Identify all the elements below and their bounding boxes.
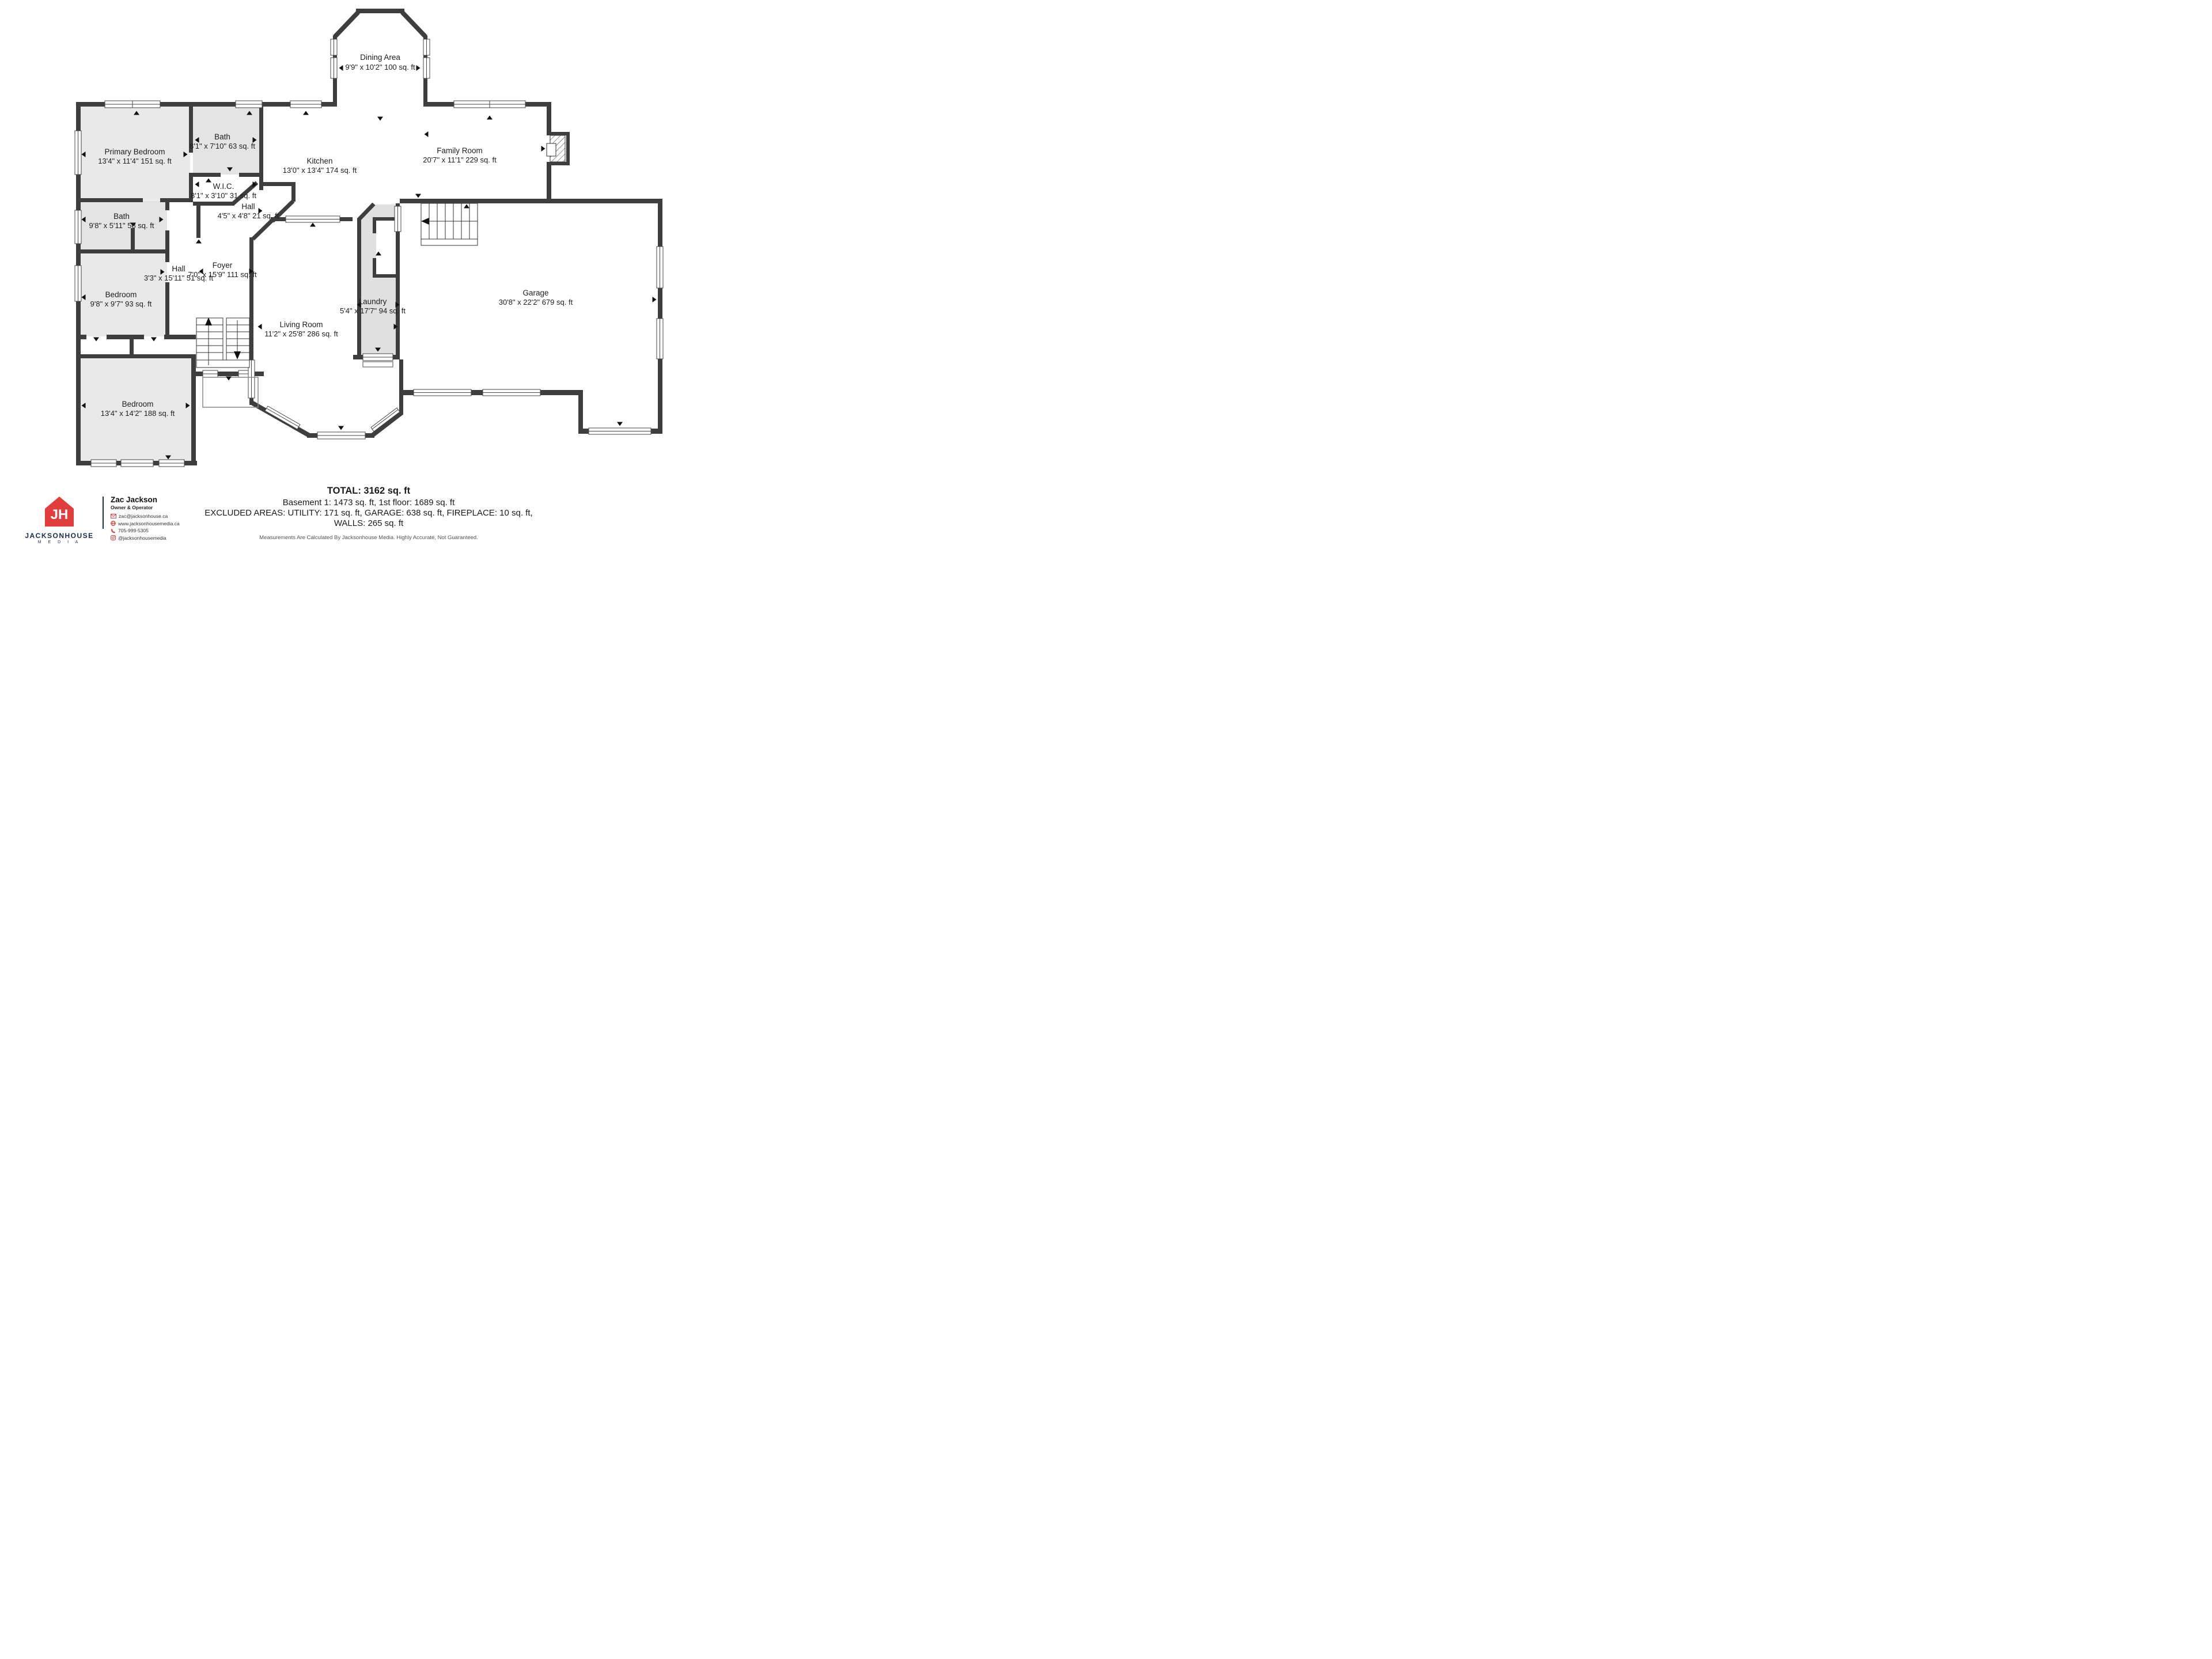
- contact-instagram: @jacksonhousemedia: [118, 535, 166, 541]
- room-label-garage: Garage: [522, 289, 548, 297]
- room-dims-hall-small: 4'5" x 4'8" 21 sq. ft: [218, 211, 279, 220]
- room-dims-bedroom-left: 9'8" x 9'7" 93 sq. ft: [90, 300, 152, 308]
- room-label-wic: W.I.C.: [213, 182, 234, 191]
- room-dims-dining: 9'9" x 10'2" 100 sq. ft: [345, 63, 415, 71]
- room-label-bath-left: Bath: [113, 212, 130, 221]
- branding-block: JH JACKSONHOUSE M E D I A Zac Jackson Ow…: [22, 494, 180, 544]
- house-logo-icon: JH: [41, 494, 77, 528]
- contact-website: www.jacksonhousemedia.ca: [118, 521, 180, 527]
- floor-plan-page: Dining Area 9'9" x 10'2" 100 sq. ft Prim…: [0, 0, 737, 553]
- garage-doors: [414, 389, 651, 434]
- room-label-bedroom-bottom: Bedroom: [122, 400, 154, 408]
- company-name: JACKSONHOUSE: [22, 532, 97, 540]
- garage-stairs: [421, 203, 478, 245]
- logo-monogram: JH: [51, 507, 69, 522]
- room-label-laundry: Laundry: [359, 297, 387, 306]
- room-label-living: Living Room: [279, 320, 323, 329]
- room-dims-bedroom-bottom: 13'4" x 14'2" 188 sq. ft: [101, 409, 175, 418]
- room-label-bedroom-left: Bedroom: [105, 290, 137, 299]
- agent-title: Owner & Operator: [111, 505, 180, 510]
- room-label-family: Family Room: [437, 146, 483, 155]
- website-icon: [111, 521, 116, 526]
- room-dims-wic: 8'1" x 3'10" 31 sq. ft: [191, 191, 256, 200]
- agent-name: Zac Jackson: [111, 495, 180, 504]
- room-label-hall: Hall: [172, 264, 185, 273]
- room-dims-garage: 30'8" x 22'2" 679 sq. ft: [499, 298, 573, 306]
- company-subtitle: M E D I A: [22, 540, 97, 544]
- room-dims-foyer: 7'0" x 15'9" 111 sq. ft: [188, 270, 257, 279]
- room-label-hall-small: Hall: [241, 202, 255, 211]
- room-dims-bath-left: 9'8" x 5'11" 58 sq. ft: [89, 221, 154, 230]
- fireplace: [547, 135, 565, 162]
- room-label-foyer: Foyer: [213, 261, 233, 270]
- room-label-bath-top: Bath: [214, 132, 230, 141]
- room-label-primary: Primary Bedroom: [104, 147, 165, 156]
- contact-phone: 705-999-5305: [118, 528, 149, 533]
- brand-divider: [103, 497, 104, 529]
- foyer-stairs: [196, 317, 249, 368]
- instagram-icon: [111, 535, 116, 540]
- room-dims-primary: 13'4" x 11'4" 151 sq. ft: [98, 157, 172, 165]
- contact-email: zac@jacksonhouse.ca: [119, 513, 168, 519]
- email-icon: [111, 514, 116, 518]
- phone-icon: [111, 528, 116, 533]
- room-dims-family: 20'7" x 11'1" 229 sq. ft: [423, 156, 497, 164]
- room-label-dining: Dining Area: [360, 53, 400, 62]
- room-dims-kitchen: 13'0" x 13'4" 174 sq. ft: [283, 166, 357, 175]
- room-dims-living: 11'2" x 25'8" 286 sq. ft: [264, 329, 338, 338]
- floor-plan-drawing: Dining Area 9'9" x 10'2" 100 sq. ft Prim…: [0, 0, 737, 478]
- agent-card: Zac Jackson Owner & Operator zac@jackson…: [111, 494, 180, 541]
- porch-outlines: [203, 362, 393, 407]
- room-dims-bath-top: 8'1" x 7'10" 63 sq. ft: [190, 142, 255, 150]
- company-logo: JH JACKSONHOUSE M E D I A: [22, 494, 97, 544]
- room-label-kitchen: Kitchen: [306, 157, 332, 165]
- room-dims-laundry: 5'4" x 17'7" 94 sq. ft: [340, 306, 406, 315]
